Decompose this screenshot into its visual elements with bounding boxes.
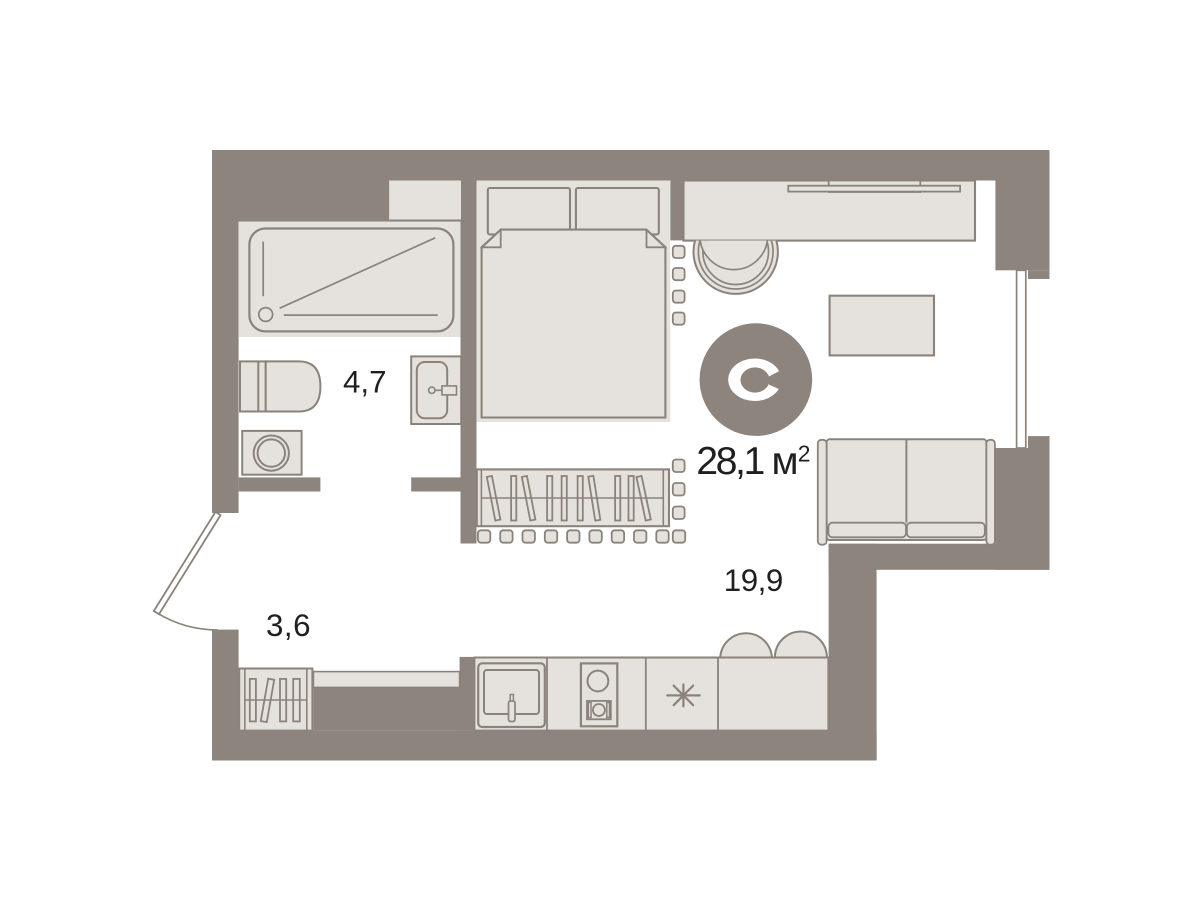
svg-text:4,7: 4,7 [343,365,387,400]
svg-text:28,1: 28,1 [696,439,765,483]
svg-text:19,9: 19,9 [724,563,784,598]
svg-text:2: 2 [798,441,811,467]
svg-text:3,6: 3,6 [266,608,311,643]
svg-text:м: м [772,439,799,483]
